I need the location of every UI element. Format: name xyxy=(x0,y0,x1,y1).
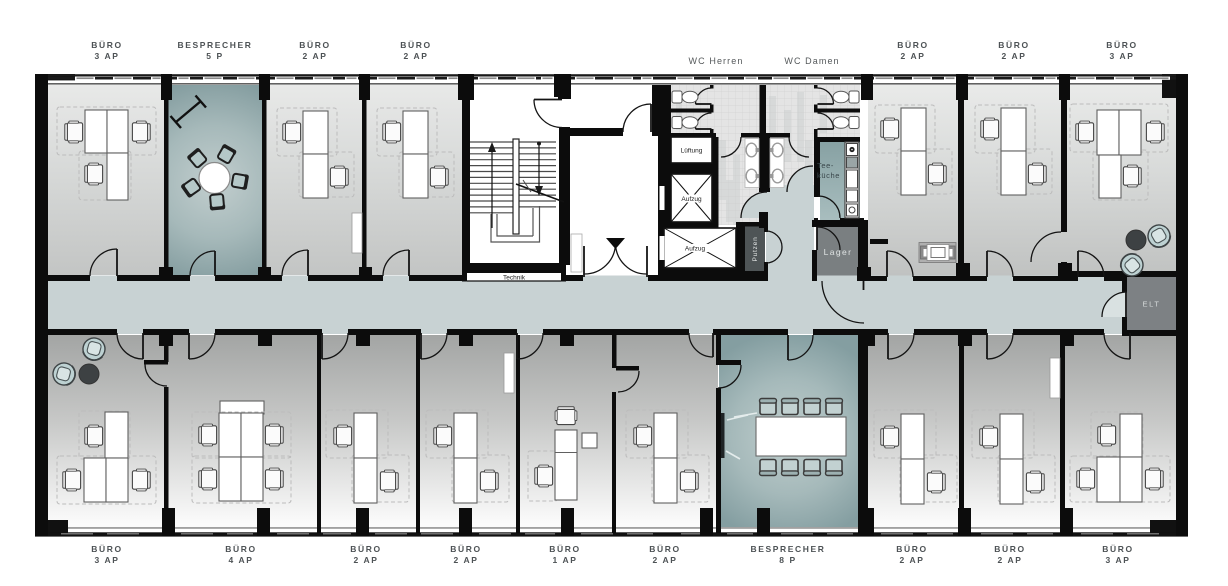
svg-text:BÜRO: BÜRO xyxy=(299,40,330,50)
svg-text:3 AP: 3 AP xyxy=(95,51,120,61)
svg-text:BÜRO: BÜRO xyxy=(400,40,431,50)
svg-text:2 AP: 2 AP xyxy=(653,555,678,565)
svg-text:BÜRO: BÜRO xyxy=(1102,544,1133,554)
svg-text:küche: küche xyxy=(817,171,840,180)
svg-text:ELT: ELT xyxy=(1143,300,1161,309)
svg-text:BÜRO: BÜRO xyxy=(91,544,122,554)
svg-text:Lager: Lager xyxy=(824,247,853,257)
svg-text:BÜRO: BÜRO xyxy=(649,544,680,554)
svg-text:BÜRO: BÜRO xyxy=(896,544,927,554)
svg-text:2 AP: 2 AP xyxy=(901,51,926,61)
svg-text:2 AP: 2 AP xyxy=(998,555,1023,565)
svg-text:BÜRO: BÜRO xyxy=(91,40,122,50)
svg-text:2 AP: 2 AP xyxy=(1002,51,1027,61)
svg-text:Aufzug: Aufzug xyxy=(685,246,706,253)
svg-text:BESPRECHER: BESPRECHER xyxy=(177,40,252,50)
svg-text:2 AP: 2 AP xyxy=(404,51,429,61)
svg-text:3 AP: 3 AP xyxy=(95,555,120,565)
svg-text:2 AP: 2 AP xyxy=(354,555,379,565)
svg-text:2 AP: 2 AP xyxy=(303,51,328,61)
svg-text:BÜRO: BÜRO xyxy=(994,544,1025,554)
svg-text:BÜRO: BÜRO xyxy=(450,544,481,554)
svg-text:Putzen: Putzen xyxy=(752,236,759,261)
svg-text:2 AP: 2 AP xyxy=(454,555,479,565)
svg-text:BÜRO: BÜRO xyxy=(1106,40,1137,50)
svg-text:8 P: 8 P xyxy=(779,555,797,565)
svg-text:Tee-: Tee- xyxy=(817,161,834,170)
svg-text:WC Herren: WC Herren xyxy=(689,56,744,66)
svg-text:2 AP: 2 AP xyxy=(900,555,925,565)
svg-text:BESPRECHER: BESPRECHER xyxy=(750,544,825,554)
svg-text:Lüftung: Lüftung xyxy=(681,148,703,155)
svg-text:WC Damen: WC Damen xyxy=(784,56,839,66)
svg-text:1 AP: 1 AP xyxy=(553,555,578,565)
svg-text:3 AP: 3 AP xyxy=(1110,51,1135,61)
svg-text:BÜRO: BÜRO xyxy=(998,40,1029,50)
svg-text:Technik: Technik xyxy=(503,275,526,282)
svg-text:Aufzug: Aufzug xyxy=(681,196,702,203)
svg-text:BÜRO: BÜRO xyxy=(897,40,928,50)
svg-text:5 P: 5 P xyxy=(206,51,224,61)
svg-text:4 AP: 4 AP xyxy=(229,555,254,565)
svg-text:BÜRO: BÜRO xyxy=(350,544,381,554)
svg-text:BÜRO: BÜRO xyxy=(549,544,580,554)
svg-text:3 AP: 3 AP xyxy=(1106,555,1131,565)
svg-text:BÜRO: BÜRO xyxy=(225,544,256,554)
